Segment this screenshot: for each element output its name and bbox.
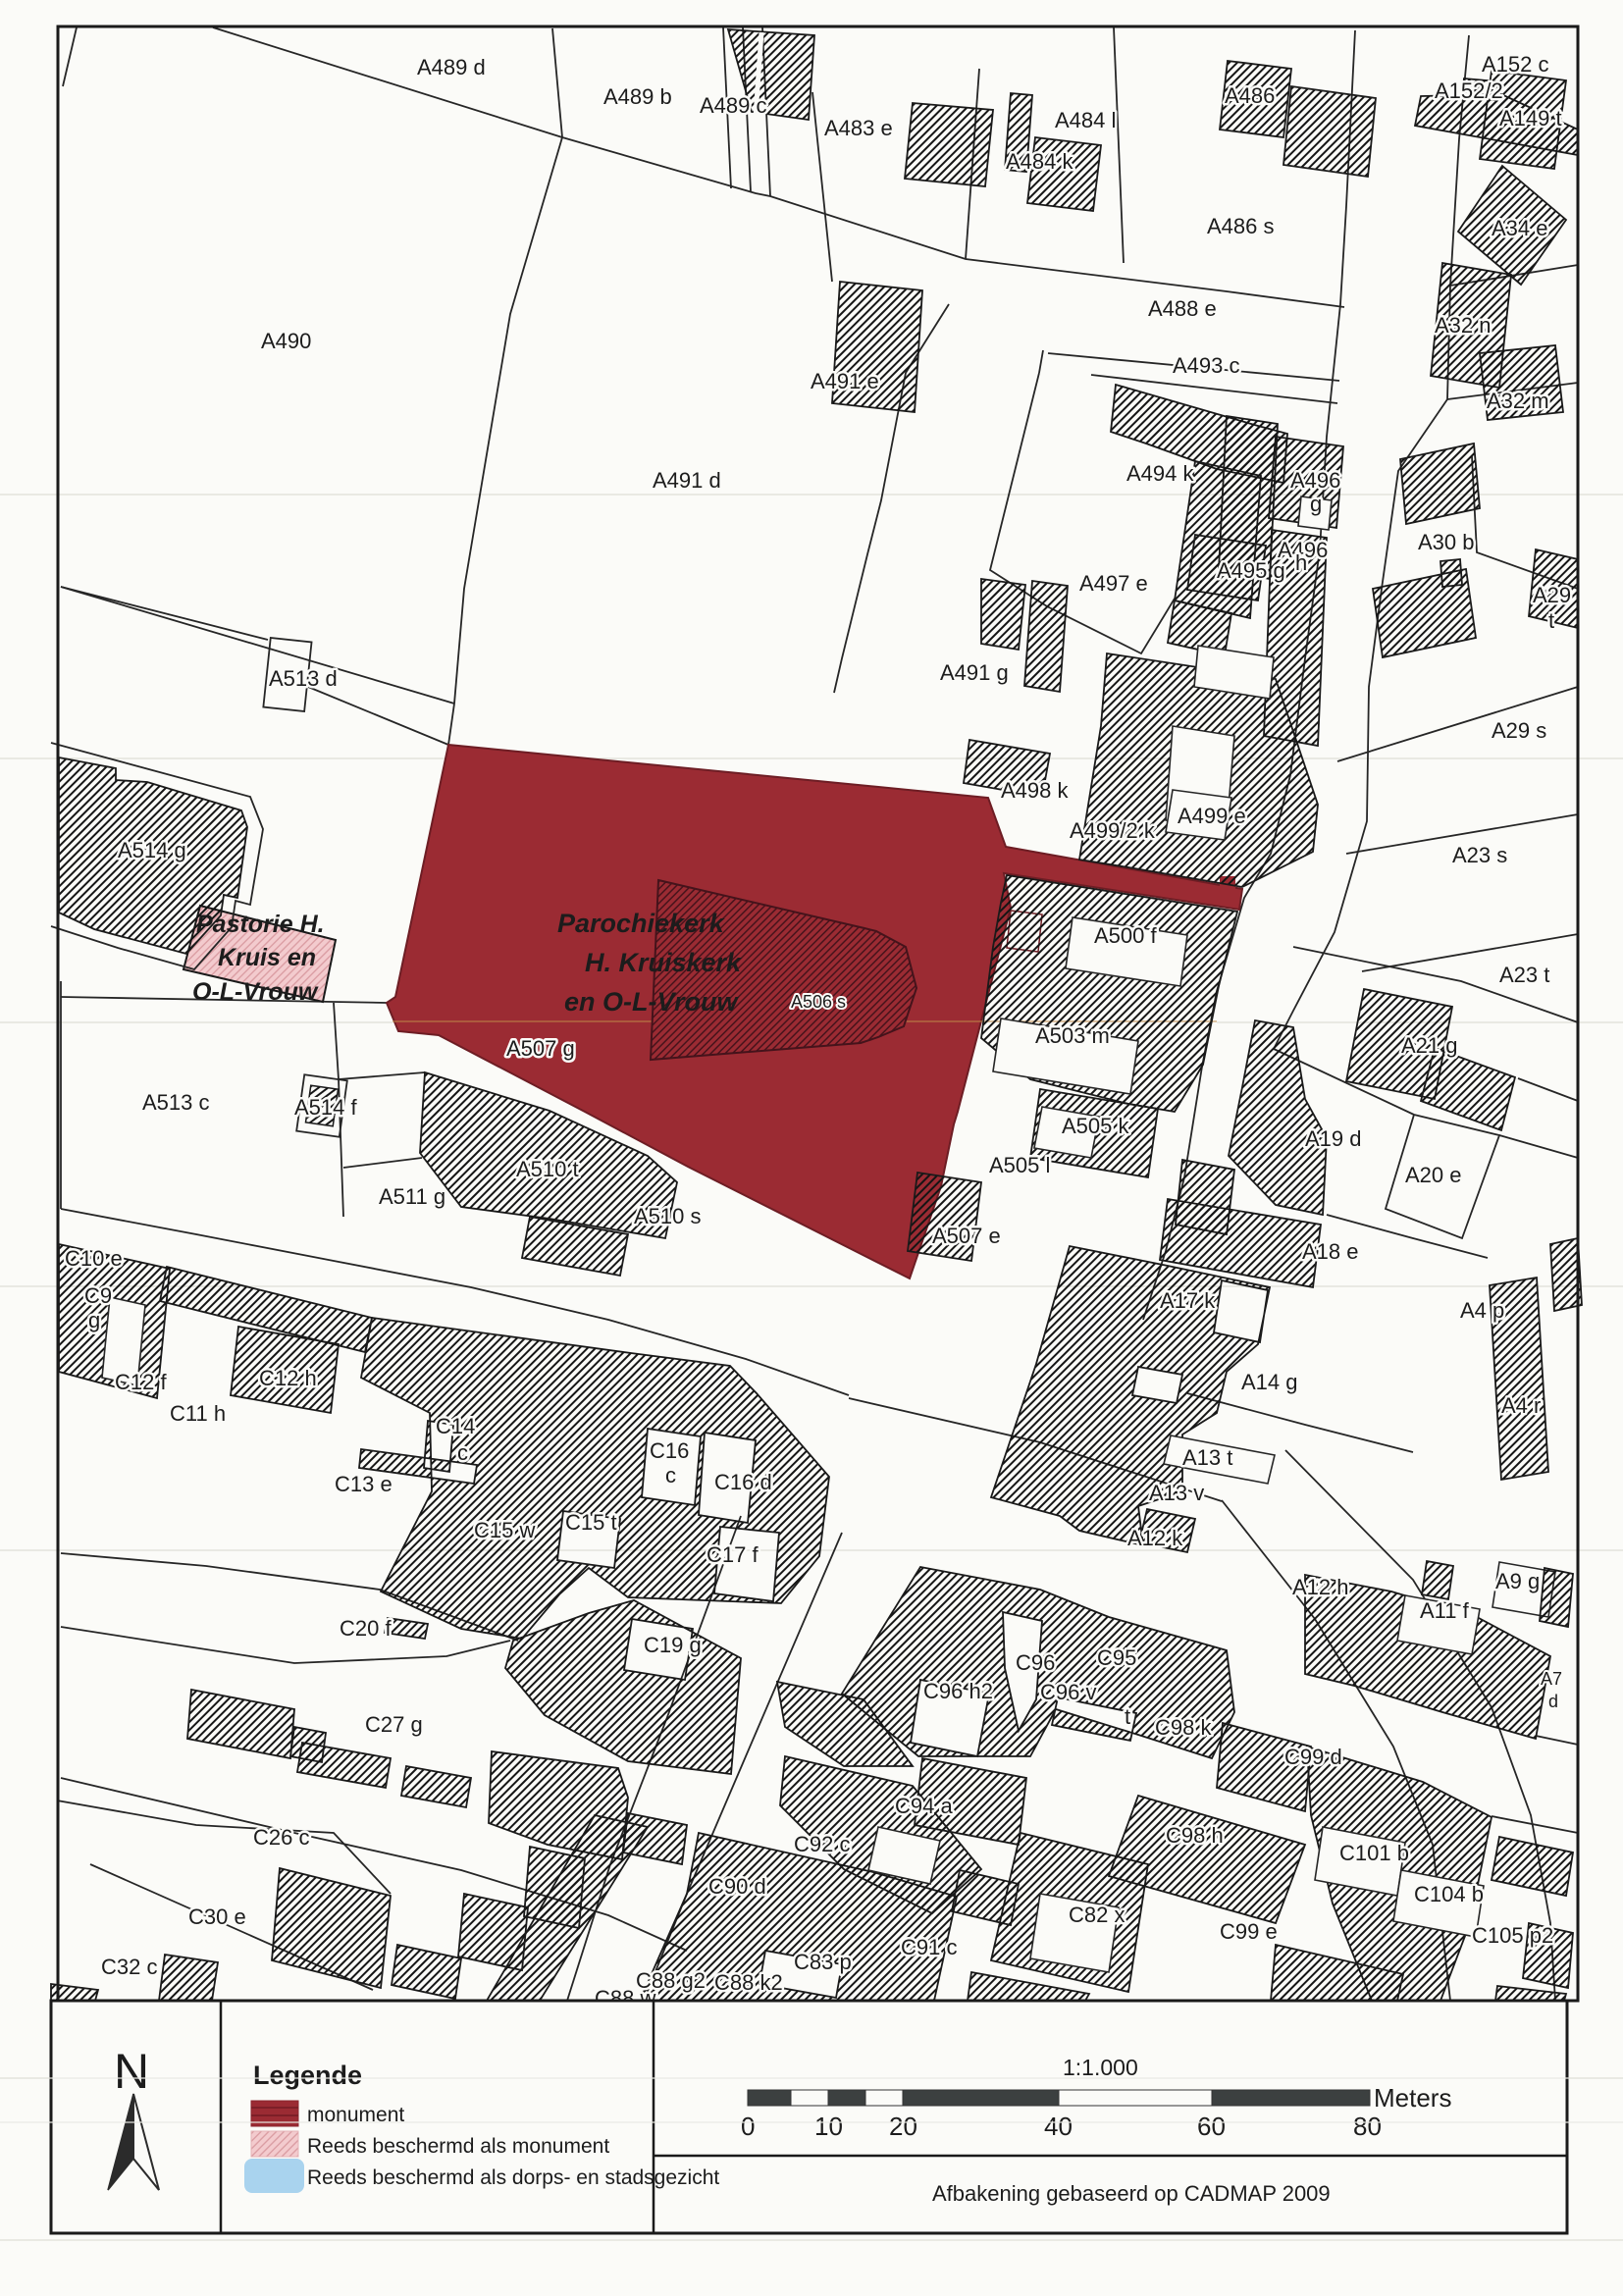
svg-text:Kruis en: Kruis en [218, 944, 316, 971]
svg-text:C16: C16 [650, 1438, 689, 1463]
svg-text:t: t [1125, 1704, 1130, 1729]
svg-text:C91 c: C91 c [901, 1935, 957, 1959]
svg-text:Reeds beschermd als dorps- en: Reeds beschermd als dorps- en stadsgezic… [307, 2166, 719, 2189]
svg-text:A29 s: A29 s [1492, 718, 1546, 743]
svg-text:A7: A7 [1541, 1669, 1562, 1689]
svg-text:C95: C95 [1097, 1645, 1136, 1670]
svg-text:A34 e: A34 e [1492, 216, 1548, 240]
svg-text:A499/2 k: A499/2 k [1070, 818, 1156, 843]
svg-text:20: 20 [889, 2112, 917, 2141]
svg-text:A503 m: A503 m [1035, 1023, 1110, 1048]
svg-text:C10 e: C10 e [65, 1246, 123, 1271]
svg-text:A32 m: A32 m [1487, 389, 1549, 413]
svg-text:A29: A29 [1533, 583, 1571, 607]
svg-text:g: g [88, 1308, 100, 1332]
svg-text:A493 c: A493 c [1173, 353, 1240, 378]
svg-text:A488 e: A488 e [1148, 296, 1217, 321]
svg-text:C105 p2: C105 p2 [1472, 1923, 1553, 1948]
svg-text:C32 c: C32 c [101, 1955, 157, 1979]
svg-text:A514 f: A514 f [294, 1095, 357, 1120]
svg-text:A4 p: A4 p [1460, 1298, 1504, 1323]
svg-text:C98 h: C98 h [1166, 1823, 1224, 1848]
svg-text:C94 a: C94 a [895, 1794, 953, 1818]
svg-text:A152 c: A152 c [1482, 52, 1549, 77]
svg-text:en O-L-Vrouw: en O-L-Vrouw [564, 987, 740, 1017]
svg-text:C16 d: C16 d [714, 1470, 772, 1494]
svg-text:A513 d: A513 d [269, 666, 338, 691]
svg-text:A507 g: A507 g [506, 1036, 575, 1061]
svg-text:Legende: Legende [253, 2061, 362, 2090]
svg-text:H. Kruiskerk: H. Kruiskerk [585, 948, 743, 977]
svg-text:A13 t: A13 t [1182, 1445, 1232, 1470]
svg-text:A498 k: A498 k [1001, 778, 1069, 803]
svg-text:C104 b: C104 b [1414, 1882, 1484, 1906]
svg-text:A19 d: A19 d [1305, 1126, 1362, 1151]
svg-text:A491 e: A491 e [811, 369, 879, 393]
svg-text:A495 g: A495 g [1217, 558, 1285, 583]
svg-text:A489 c: A489 c [700, 93, 767, 118]
svg-text:A484 k: A484 k [1006, 149, 1073, 174]
svg-text:A4 r: A4 r [1501, 1393, 1541, 1418]
svg-text:A23 t: A23 t [1499, 963, 1549, 987]
svg-text:A484 l: A484 l [1055, 108, 1116, 132]
svg-text:A20 e: A20 e [1405, 1163, 1462, 1187]
svg-text:A510 s: A510 s [634, 1204, 702, 1228]
svg-text:C20 f: C20 f [340, 1616, 392, 1641]
svg-text:A514 g: A514 g [118, 838, 186, 862]
svg-text:C101 b: C101 b [1339, 1841, 1409, 1865]
svg-text:A513 c: A513 c [142, 1090, 210, 1115]
svg-text:A21 g: A21 g [1401, 1033, 1458, 1058]
svg-text:80: 80 [1353, 2112, 1382, 2141]
svg-text:C27 g: C27 g [365, 1712, 423, 1737]
svg-text:A494 k: A494 k [1126, 461, 1194, 486]
svg-text:A12 h: A12 h [1292, 1575, 1349, 1599]
svg-text:O-L-Vrouw: O-L-Vrouw [192, 978, 319, 1006]
svg-text:Parochiekerk: Parochiekerk [557, 909, 726, 938]
svg-text:A14 g: A14 g [1241, 1370, 1298, 1394]
svg-text:C15 w: C15 w [474, 1518, 535, 1542]
svg-text:C12 h: C12 h [259, 1366, 317, 1390]
svg-text:A496: A496 [1290, 468, 1340, 493]
svg-text:C15 t: C15 t [565, 1510, 617, 1535]
svg-text:A491 g: A491 g [940, 660, 1009, 685]
svg-text:A12 k: A12 k [1127, 1526, 1183, 1550]
svg-text:C92 c: C92 c [794, 1832, 850, 1856]
svg-text:A511 g: A511 g [379, 1184, 445, 1209]
svg-text:A152/2: A152/2 [1435, 78, 1503, 103]
svg-text:A17 k: A17 k [1160, 1288, 1216, 1313]
svg-text:A30 b: A30 b [1418, 530, 1475, 554]
svg-text:C82 x: C82 x [1069, 1903, 1125, 1927]
svg-text:C88 k2: C88 k2 [714, 1970, 783, 1995]
svg-text:C96 h2: C96 h2 [923, 1679, 993, 1703]
svg-text:A505 k: A505 k [1062, 1114, 1129, 1138]
svg-text:A486 s: A486 s [1207, 214, 1275, 238]
svg-text:g: g [1310, 492, 1322, 516]
svg-text:A13 v: A13 v [1149, 1481, 1204, 1505]
svg-text:40: 40 [1044, 2112, 1073, 2141]
svg-text:A507 e: A507 e [932, 1224, 1001, 1248]
svg-text:c: c [665, 1463, 676, 1487]
svg-text:C96 v: C96 v [1040, 1680, 1096, 1704]
svg-text:A23 s: A23 s [1452, 843, 1507, 867]
svg-text:60: 60 [1197, 2112, 1226, 2141]
svg-text:C17 f: C17 f [707, 1542, 759, 1567]
svg-text:C26 c: C26 c [253, 1825, 309, 1850]
svg-text:C99 e: C99 e [1220, 1919, 1278, 1944]
svg-text:A499 e: A499 e [1178, 804, 1246, 828]
svg-text:C90 d: C90 d [708, 1874, 766, 1899]
svg-text:A506 s: A506 s [791, 992, 846, 1012]
svg-text:10: 10 [814, 2112, 843, 2141]
svg-text:C19 g: C19 g [644, 1633, 702, 1657]
svg-text:A491 d: A491 d [653, 468, 721, 493]
svg-text:A490: A490 [261, 329, 311, 353]
svg-text:C30 e: C30 e [188, 1905, 246, 1929]
svg-text:C14: C14 [436, 1414, 475, 1438]
svg-text:C98 k: C98 k [1155, 1715, 1212, 1740]
svg-text:A32 n: A32 n [1435, 313, 1492, 338]
svg-text:A486: A486 [1225, 83, 1275, 108]
svg-text:C96: C96 [1016, 1650, 1055, 1675]
svg-text:C11 h: C11 h [170, 1401, 226, 1426]
svg-text:A500 f: A500 f [1094, 923, 1157, 948]
svg-text:A510 t: A510 t [516, 1157, 579, 1181]
svg-text:A11 f: A11 f [1420, 1598, 1470, 1623]
svg-text:0: 0 [741, 2112, 755, 2141]
svg-text:A505 l: A505 l [989, 1153, 1050, 1177]
svg-text:C99 d: C99 d [1284, 1745, 1342, 1769]
svg-text:Reeds beschermd als monument: Reeds beschermd als monument [307, 2135, 609, 2158]
svg-text:c: c [457, 1440, 468, 1465]
svg-text:C12 f: C12 f [115, 1370, 167, 1394]
svg-text:N: N [114, 2044, 149, 2099]
svg-text:1:1.000: 1:1.000 [1063, 2055, 1138, 2080]
svg-text:A489 d: A489 d [417, 55, 486, 79]
svg-text:A483 e: A483 e [824, 116, 893, 140]
svg-text:C83 p: C83 p [794, 1950, 852, 1974]
svg-text:A149 t: A149 t [1499, 106, 1562, 130]
svg-text:C13 e: C13 e [335, 1472, 393, 1496]
svg-text:Afbakening gebaseerd op CADMAP: Afbakening gebaseerd op CADMAP 2009 [932, 2181, 1331, 2206]
svg-text:A489 b: A489 b [603, 84, 672, 109]
svg-text:A9 g: A9 g [1495, 1569, 1540, 1593]
svg-text:Pastorie H.: Pastorie H. [196, 911, 325, 938]
svg-text:A18 e: A18 e [1302, 1239, 1359, 1264]
svg-text:A497 e: A497 e [1079, 571, 1148, 596]
svg-text:t: t [1548, 608, 1554, 633]
svg-text:h: h [1295, 550, 1307, 575]
svg-text:d: d [1548, 1692, 1558, 1711]
svg-text:Meters: Meters [1374, 2083, 1451, 2113]
svg-text:C9: C9 [84, 1283, 112, 1308]
